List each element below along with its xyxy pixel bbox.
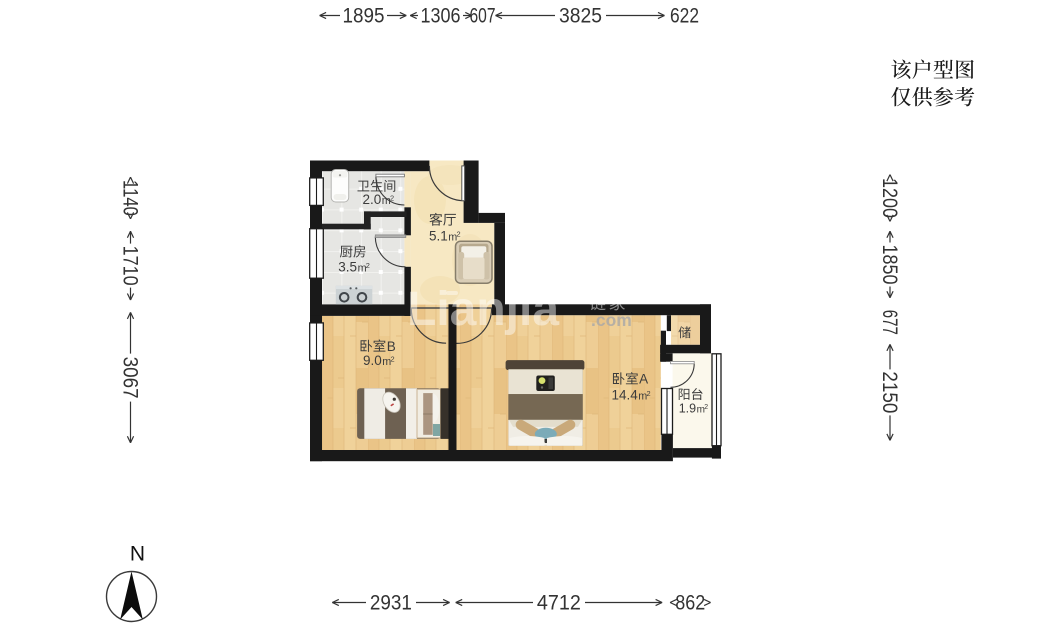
svg-text:862: 862 (675, 592, 705, 615)
svg-text:677: 677 (878, 310, 901, 335)
svg-text:1710: 1710 (119, 246, 142, 286)
svg-text:622: 622 (670, 5, 699, 28)
svg-text:9.0: 9.0 (363, 353, 382, 368)
svg-text:2: 2 (457, 230, 461, 239)
svg-text:14.4: 14.4 (612, 388, 639, 403)
svg-text:2931: 2931 (370, 592, 412, 615)
svg-text:A: A (639, 372, 648, 387)
svg-text:2: 2 (647, 389, 651, 398)
svg-text:5.1: 5.1 (429, 228, 448, 243)
svg-text:Lianjia: Lianjia (407, 283, 559, 336)
svg-text:2: 2 (704, 404, 708, 411)
svg-text:1850: 1850 (878, 245, 901, 285)
svg-text:3.5: 3.5 (338, 260, 357, 275)
svg-text:1200: 1200 (878, 178, 901, 218)
svg-text:1895: 1895 (343, 5, 385, 28)
svg-text:B: B (387, 339, 396, 354)
svg-text:N: N (130, 543, 145, 566)
svg-text:2: 2 (366, 261, 370, 270)
svg-text:.com: .com (591, 310, 632, 330)
svg-text:607: 607 (470, 5, 496, 28)
svg-text:2: 2 (391, 354, 395, 363)
svg-text:3067: 3067 (119, 357, 142, 399)
svg-text:1140: 1140 (119, 180, 142, 216)
svg-text:2: 2 (390, 193, 394, 202)
svg-text:4712: 4712 (537, 592, 581, 615)
svg-text:2150: 2150 (878, 371, 901, 413)
svg-text:2.0: 2.0 (363, 192, 382, 207)
svg-text:3825: 3825 (559, 5, 602, 28)
svg-text:1.9: 1.9 (679, 402, 696, 416)
svg-text:1306: 1306 (421, 5, 461, 28)
